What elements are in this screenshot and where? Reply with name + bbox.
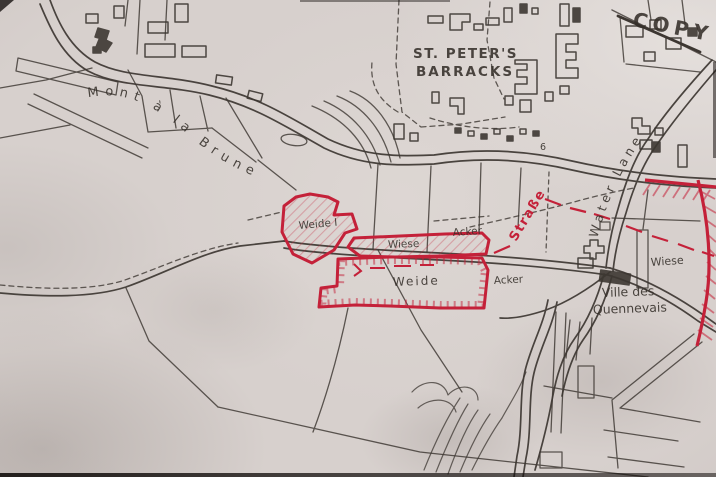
label-ville-des: Ville des bbox=[602, 283, 655, 300]
scan-edge-corner bbox=[0, 0, 14, 12]
field-label-wiese-strip: Wiese bbox=[388, 238, 420, 251]
terrace-contours bbox=[312, 91, 400, 168]
road-label-water-lane: Water Lane bbox=[586, 131, 646, 239]
label-strasse-red: Straße bbox=[507, 187, 550, 244]
vegetation-sketch bbox=[412, 372, 526, 474]
road-label-mont-a-la-brune: Mont à la Brune bbox=[87, 84, 262, 181]
label-barracks-line2: BARRACKS bbox=[416, 64, 514, 80]
scan-edge-top bbox=[300, 0, 450, 2]
scan-edge-bottom bbox=[0, 473, 716, 477]
field-label-wiese-east: Wiese bbox=[650, 254, 684, 269]
field-label-acker-south: Acker bbox=[494, 273, 525, 287]
hand-drawn-requisition-map: COPY ST. PETER'S BARRACKS Mont à la Brun… bbox=[0, 0, 716, 477]
field-label-weide: Weide bbox=[393, 273, 440, 289]
label-barracks-line1: ST. PETER'S bbox=[413, 46, 518, 62]
map-drawing: COPY ST. PETER'S BARRACKS Mont à la Brun… bbox=[0, 0, 716, 477]
field-boundary-lines bbox=[0, 0, 702, 477]
label-quennevais: Quennevais bbox=[593, 299, 668, 317]
field-label-acker-north: Acker bbox=[452, 225, 483, 239]
label-house-number-6: 6 bbox=[540, 142, 546, 153]
